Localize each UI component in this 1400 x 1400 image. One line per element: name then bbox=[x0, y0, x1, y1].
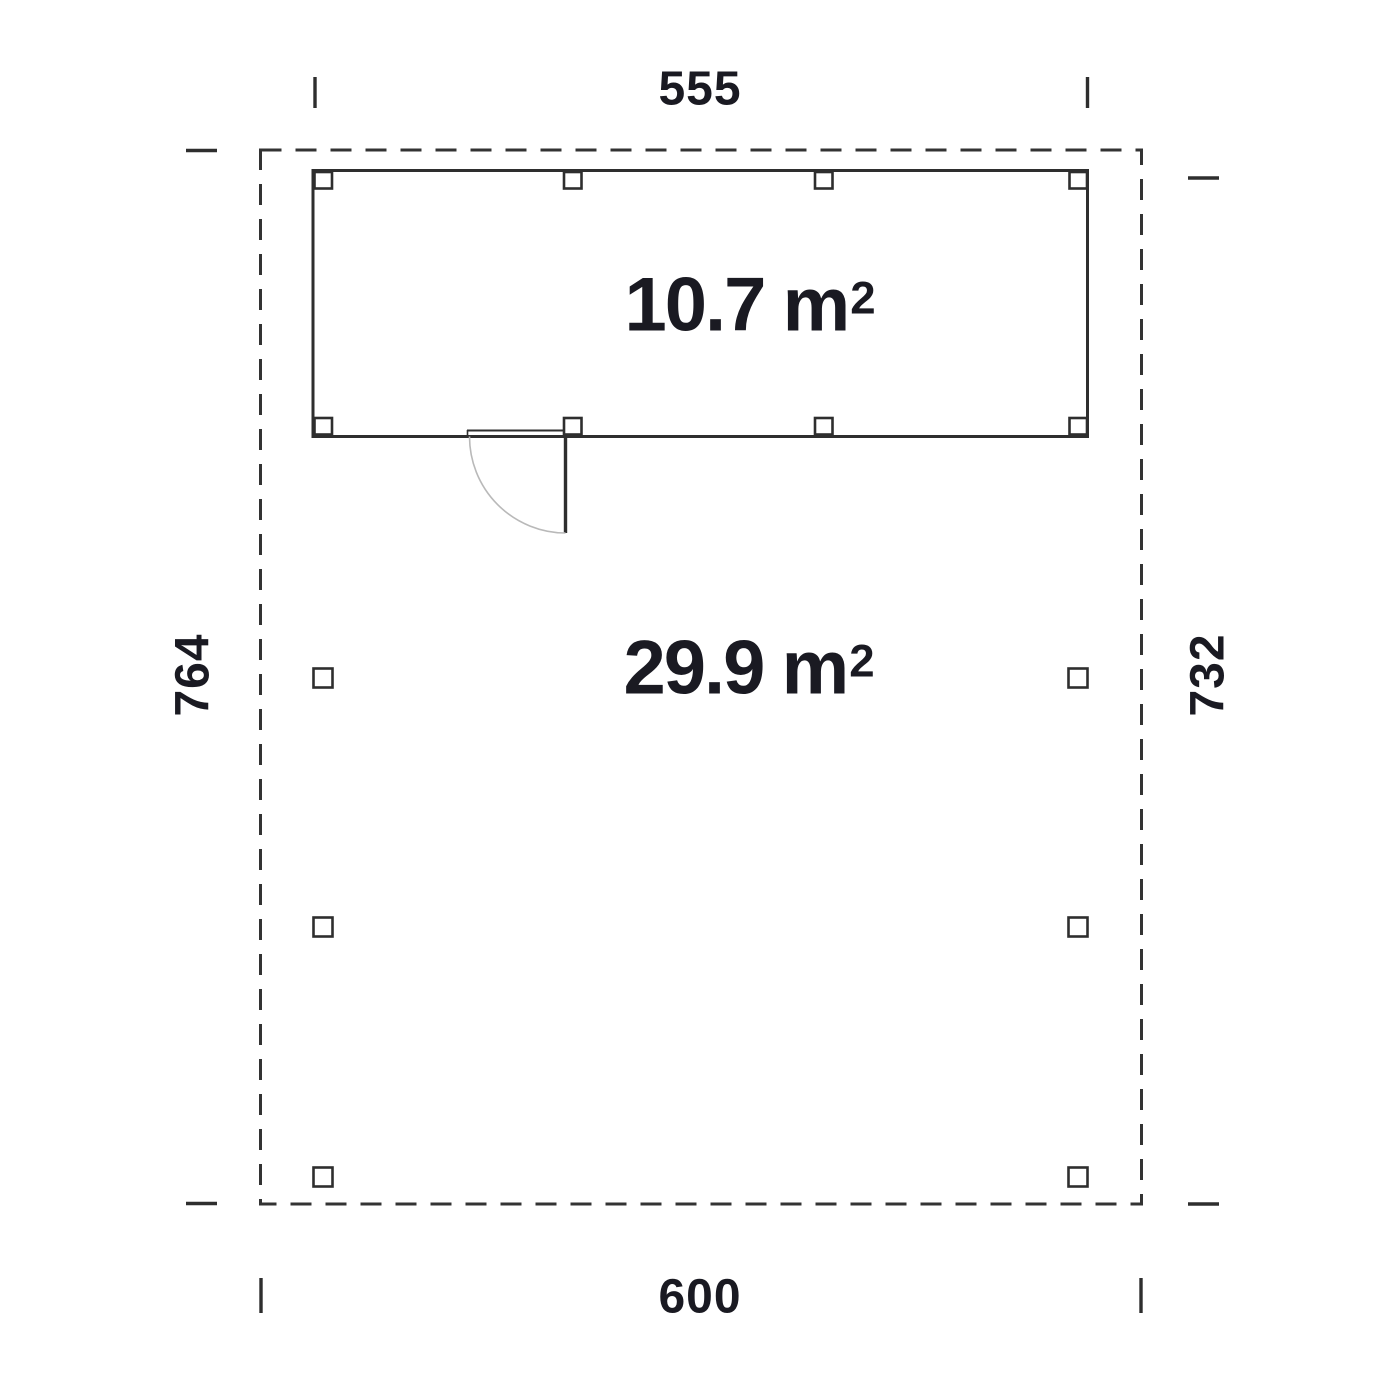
support-post bbox=[314, 918, 333, 937]
area-unit: m bbox=[782, 626, 848, 711]
support-post bbox=[315, 172, 333, 189]
support-post bbox=[1069, 1168, 1088, 1187]
support-post bbox=[314, 669, 333, 688]
area-exponent: 2 bbox=[850, 272, 875, 323]
door bbox=[467, 430, 566, 533]
support-post bbox=[815, 172, 833, 189]
support-post bbox=[1069, 918, 1088, 937]
floor-plan: 555 600 764 732 10.7m2 29.9m2 bbox=[0, 0, 1400, 1400]
dimension-label-right: 732 bbox=[1181, 633, 1236, 716]
support-post bbox=[564, 172, 582, 189]
area-label-room: 10.7m2 bbox=[624, 262, 875, 349]
support-posts-bottom-wall bbox=[315, 418, 1088, 435]
carport-posts bbox=[314, 669, 1088, 1187]
door-swing-arc bbox=[469, 437, 565, 534]
support-post bbox=[1070, 418, 1088, 435]
support-post bbox=[815, 418, 833, 435]
area-value: 29.9 bbox=[623, 626, 763, 711]
area-unit: m bbox=[783, 263, 849, 348]
dimension-label-left: 764 bbox=[166, 633, 221, 716]
support-post bbox=[564, 418, 582, 435]
support-post bbox=[1069, 669, 1088, 688]
support-post bbox=[315, 418, 333, 435]
area-label-carport: 29.9m2 bbox=[623, 625, 874, 712]
area-value: 10.7 bbox=[624, 263, 764, 348]
support-posts-top-wall bbox=[315, 172, 1088, 189]
support-post bbox=[1070, 172, 1088, 189]
dimension-label-bottom: 600 bbox=[658, 1270, 741, 1325]
support-post bbox=[314, 1168, 333, 1187]
dimension-label-top: 555 bbox=[658, 62, 741, 117]
area-exponent: 2 bbox=[849, 635, 874, 686]
